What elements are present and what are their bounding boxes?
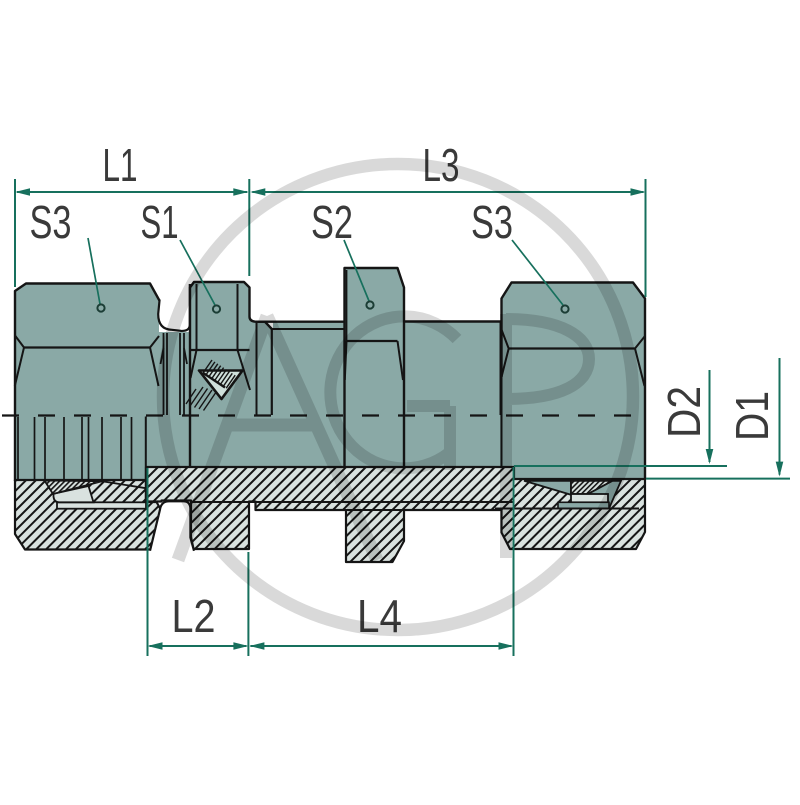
- svg-text:S1: S1: [141, 196, 179, 248]
- svg-text:S3: S3: [30, 196, 72, 248]
- svg-text:D1: D1: [726, 391, 778, 441]
- svg-text:D2: D2: [658, 386, 710, 438]
- svg-text:L1: L1: [103, 139, 138, 191]
- svg-text:S3: S3: [471, 196, 513, 248]
- svg-text:S2: S2: [311, 196, 353, 248]
- svg-text:L2: L2: [172, 590, 216, 642]
